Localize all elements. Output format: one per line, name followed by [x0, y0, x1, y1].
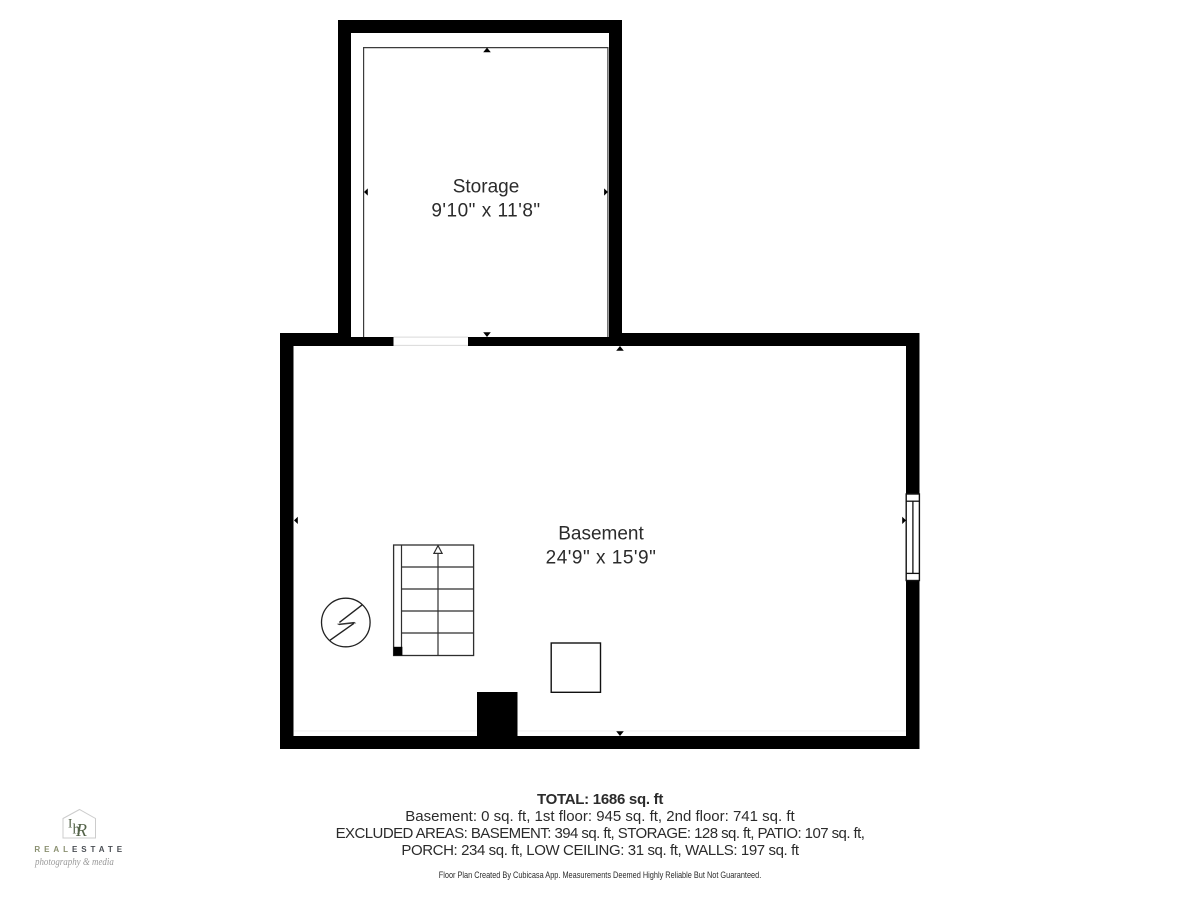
svg-text:9'10" x 11'8": 9'10" x 11'8" — [431, 201, 540, 222]
svg-text:Basement: Basement — [558, 524, 644, 545]
svg-text:R: R — [75, 820, 87, 840]
svg-text:Storage: Storage — [453, 177, 520, 198]
svg-text:24'9" x 15'9": 24'9" x 15'9" — [546, 548, 657, 569]
